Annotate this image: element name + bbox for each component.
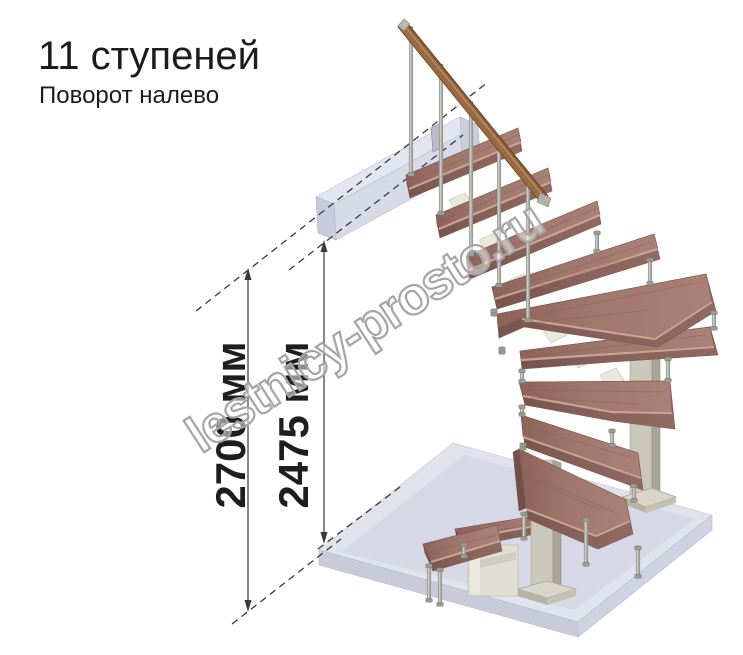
svg-text:11 ступеней: 11 ступеней <box>38 34 260 78</box>
svg-text:Поворот налево: Поворот налево <box>39 82 219 109</box>
